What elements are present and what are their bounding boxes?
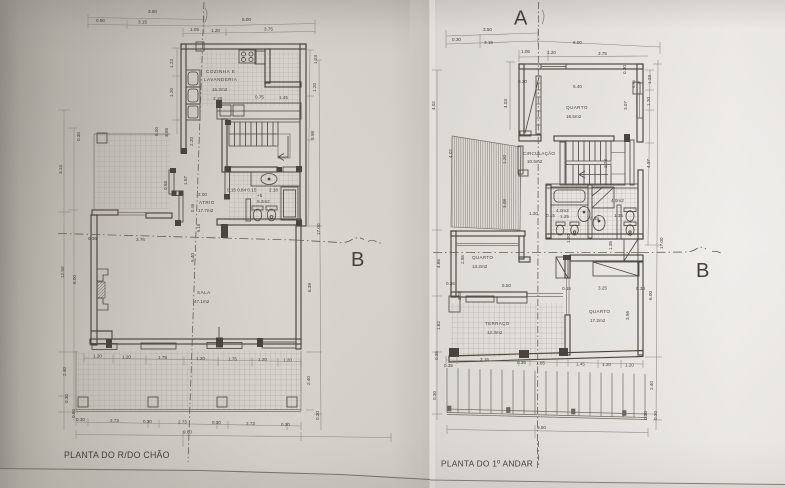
svg-text:1.57: 1.57 (183, 176, 188, 185)
svg-text:3.25: 3.25 (598, 286, 607, 291)
svg-text:4.02: 4.02 (431, 101, 436, 110)
svg-text:0.30: 0.30 (281, 422, 290, 427)
svg-text:SALA: SALA (197, 290, 211, 295)
svg-text:1.62: 1.62 (436, 321, 441, 330)
svg-text:ATRIO: ATRIO (199, 200, 215, 205)
svg-text:5.40: 5.40 (573, 84, 582, 89)
svg-text:12.3m2: 12.3m2 (487, 330, 503, 335)
svg-text:1.20: 1.20 (122, 355, 131, 360)
svg-text:2.40: 2.40 (306, 376, 311, 385)
svg-text:1.20: 1.20 (258, 357, 267, 362)
svg-text:4.37: 4.37 (646, 159, 651, 168)
svg-text:17.00: 17.00 (316, 223, 321, 235)
svg-text:3.98: 3.98 (310, 131, 315, 140)
svg-text:4.65: 4.65 (436, 259, 441, 268)
svg-text:2.86: 2.86 (460, 255, 465, 264)
svg-text:4.03: 4.03 (503, 99, 508, 108)
svg-text:9.80: 9.80 (183, 430, 192, 435)
svg-text:0.35: 0.35 (444, 363, 453, 368)
svg-text:0.35: 0.35 (517, 360, 526, 365)
svg-text:0.30: 0.30 (452, 37, 461, 42)
svg-text:2.73: 2.73 (246, 421, 255, 426)
svg-text:PLANTA DO 1º ANDAR: PLANTA DO 1º ANDAR (441, 459, 533, 469)
svg-text:1.23: 1.23 (313, 55, 318, 64)
svg-text:17.7m2: 17.7m2 (198, 208, 214, 213)
svg-text:2.73: 2.73 (110, 418, 119, 423)
svg-text:2.33: 2.33 (603, 159, 608, 168)
svg-text:6.15: 6.15 (196, 223, 201, 232)
svg-text:8.00: 8.00 (154, 127, 159, 136)
svg-text:A: A (514, 8, 528, 30)
svg-text:0.30: 0.30 (143, 419, 152, 424)
svg-text:3.14: 3.14 (58, 165, 63, 174)
svg-text:3.75: 3.75 (598, 51, 607, 56)
svg-text:0.30: 0.30 (643, 411, 648, 420)
svg-text:0.93: 0.93 (163, 181, 168, 190)
svg-text:0.30: 0.30 (76, 132, 81, 141)
svg-text:COZINHA E: COZINHA E (206, 69, 235, 74)
svg-text:1.45: 1.45 (279, 95, 288, 100)
svg-text:2.73: 2.73 (178, 420, 187, 425)
svg-text:6.00: 6.00 (72, 275, 77, 284)
svg-text:1.75: 1.75 (158, 355, 167, 360)
svg-text:0.15: 0.15 (546, 213, 555, 218)
svg-text:3.50: 3.50 (483, 27, 492, 32)
svg-text:17.00: 17.00 (659, 237, 664, 249)
svg-text:1.45: 1.45 (576, 362, 585, 367)
svg-text:0.30: 0.30 (212, 420, 221, 425)
svg-text:0.50: 0.50 (96, 18, 105, 23)
svg-text:0.46: 0.46 (190, 203, 195, 212)
svg-text:6.00: 6.00 (573, 40, 582, 45)
svg-text:2.40: 2.40 (649, 381, 654, 390)
svg-text:0.30: 0.30 (518, 79, 527, 84)
svg-text:1.20: 1.20 (566, 234, 571, 243)
svg-text:1.20: 1.20 (502, 155, 507, 164)
svg-text:6.39: 6.39 (307, 283, 312, 292)
svg-text:2.20: 2.20 (189, 137, 194, 146)
svg-text:5.40: 5.40 (190, 253, 195, 262)
svg-text:1.35: 1.35 (614, 213, 623, 218)
svg-text:2.00: 2.00 (198, 192, 207, 197)
svg-text:1.20: 1.20 (602, 362, 611, 367)
svg-text:3.15: 3.15 (484, 40, 493, 45)
svg-text:3.56: 3.56 (625, 311, 630, 320)
svg-text:1.25: 1.25 (560, 214, 569, 219)
svg-text:TERRAÇO: TERRAÇO (485, 321, 510, 326)
svg-text:1.20: 1.20 (312, 83, 317, 92)
svg-text:3.15: 3.15 (138, 20, 147, 25)
svg-text:0.30: 0.30 (653, 411, 658, 420)
svg-text:5.50: 5.50 (502, 283, 511, 288)
svg-text:1.23: 1.23 (169, 59, 174, 68)
svg-text:0.35: 0.35 (434, 351, 439, 360)
svg-text:0.30: 0.30 (622, 65, 627, 74)
svg-text:9.50: 9.50 (537, 425, 546, 430)
svg-text:0.15 0.84 0.15: 0.15 0.84 0.15 (227, 188, 257, 193)
svg-text:0.75: 0.75 (255, 95, 264, 100)
svg-text:QUARTO: QUARTO (566, 105, 588, 110)
svg-text:1.20: 1.20 (646, 97, 651, 106)
svg-text:0.36: 0.36 (88, 236, 97, 241)
svg-text:16.2m2: 16.2m2 (212, 87, 228, 92)
svg-text:3.08: 3.08 (502, 199, 507, 208)
svg-text:6.00: 6.00 (648, 291, 653, 300)
svg-text:0.30: 0.30 (315, 411, 320, 420)
svg-text:17.2m2: 17.2m2 (590, 318, 606, 323)
svg-text:13.2m2: 13.2m2 (472, 264, 488, 269)
svg-text:B: B (696, 260, 709, 282)
svg-text:3.08: 3.08 (457, 291, 462, 300)
svg-text:1.20: 1.20 (93, 354, 102, 359)
svg-text:1.20: 1.20 (529, 211, 538, 216)
svg-text:0.30: 0.30 (636, 286, 645, 291)
svg-text:3.75: 3.75 (264, 27, 273, 32)
svg-text:2.18: 2.18 (269, 188, 278, 193)
svg-text:3.80: 3.80 (148, 9, 157, 14)
svg-text:0.30: 0.30 (432, 391, 437, 400)
svg-text:1.05: 1.05 (190, 27, 199, 32)
svg-text:3.07: 3.07 (623, 101, 628, 110)
svg-text:0.30: 0.30 (631, 79, 636, 88)
svg-text:QUARTO: QUARTO (472, 255, 493, 260)
svg-text:+5: +5 (257, 193, 263, 198)
svg-text:2.40: 2.40 (62, 367, 67, 376)
svg-text:47.1m2: 47.1m2 (194, 299, 210, 304)
svg-text:0.30: 0.30 (64, 394, 69, 403)
svg-text:3.15: 3.15 (480, 357, 489, 362)
svg-text:B: B (351, 249, 364, 271)
svg-text:0.30: 0.30 (76, 417, 85, 422)
svg-text:10.5m2: 10.5m2 (527, 159, 543, 164)
svg-text:1.20: 1.20 (547, 50, 556, 55)
svg-text:1.20: 1.20 (625, 363, 634, 368)
svg-text:0.35: 0.35 (590, 216, 599, 221)
svg-text:4.0m2: 4.0m2 (556, 208, 569, 213)
svg-text:1.20: 1.20 (196, 356, 205, 361)
svg-text:CIRCULAÇÃO: CIRCULAÇÃO (523, 150, 555, 156)
svg-text:0.15: 0.15 (562, 286, 571, 291)
svg-text:9.2m2: 9.2m2 (257, 199, 270, 204)
svg-text:6.00: 6.00 (242, 17, 251, 22)
svg-text:LAVANDERIA: LAVANDERIA (204, 77, 238, 82)
svg-text:1.20: 1.20 (283, 358, 292, 363)
svg-text:1.05: 1.05 (521, 49, 530, 54)
svg-text:1.23: 1.23 (647, 75, 652, 84)
svg-text:12.50: 12.50 (60, 266, 65, 278)
svg-text:4.0m2: 4.0m2 (611, 198, 624, 203)
svg-text:1.75: 1.75 (228, 357, 237, 362)
svg-text:QUARTO: QUARTO (589, 309, 610, 314)
svg-text:4.02: 4.02 (448, 149, 453, 158)
svg-text:3.58: 3.58 (164, 128, 169, 137)
svg-text:PLANTA DO R/DO CHÃO: PLANTA DO R/DO CHÃO (64, 450, 170, 460)
svg-text:1.20: 1.20 (211, 28, 220, 33)
svg-text:3.76: 3.76 (136, 237, 145, 242)
svg-text:1.20: 1.20 (169, 88, 174, 97)
svg-text:1.35: 1.35 (608, 241, 613, 250)
svg-text:0.36: 0.36 (446, 281, 455, 286)
svg-text:16.5m2: 16.5m2 (566, 114, 582, 119)
